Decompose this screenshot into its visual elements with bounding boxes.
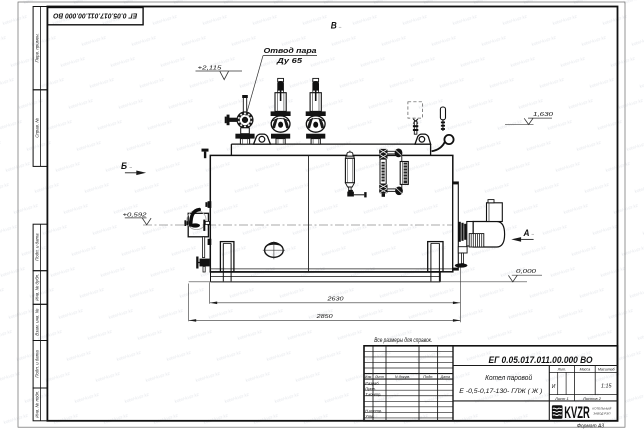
svg-text:И: И xyxy=(552,384,556,390)
svg-text:В: В xyxy=(331,21,337,31)
svg-text:Справ. №: Справ. № xyxy=(35,118,40,138)
svg-text:+0,592: +0,592 xyxy=(123,212,148,218)
svg-text:Масштаб: Масштаб xyxy=(598,368,616,372)
svg-text:А: А xyxy=(523,228,530,238)
svg-text:Взам. инв. №: Взам. инв. № xyxy=(35,308,40,335)
svg-text:Подп.: Подп. xyxy=(423,375,433,379)
svg-text:КОТЕЛЬНЫЙ: КОТЕЛЬНЫЙ xyxy=(592,407,612,411)
svg-text:Разраб.: Разраб. xyxy=(365,380,379,385)
svg-text:Масса: Масса xyxy=(580,368,591,372)
svg-text:Отвод пара: Отвод пара xyxy=(264,46,317,55)
svg-text:2630: 2630 xyxy=(326,296,344,302)
svg-text:Т.контр.: Т.контр. xyxy=(365,391,381,396)
svg-text:ЗАВОД РЭП: ЗАВОД РЭП xyxy=(593,411,611,415)
svg-text:Б: Б xyxy=(121,161,128,171)
svg-text:1,630: 1,630 xyxy=(533,112,554,118)
svg-text:Изм.: Изм. xyxy=(365,375,372,379)
svg-text:+2,115: +2,115 xyxy=(198,65,223,71)
svg-text:ЕГ 0.05.017.011.00.000 ВО: ЕГ 0.05.017.011.00.000 ВО xyxy=(489,354,594,365)
svg-text:Лит.: Лит. xyxy=(557,368,566,372)
svg-text:1:15: 1:15 xyxy=(601,384,612,390)
svg-text:ЕГ 0.05.017.011.00.000 ВО: ЕГ 0.05.017.011.00.000 ВО xyxy=(53,12,137,21)
svg-text:Дата: Дата xyxy=(440,375,450,379)
svg-text:Лист 1: Лист 1 xyxy=(554,396,569,401)
svg-text:Пров.: Пров. xyxy=(365,386,376,391)
svg-text:Н.контр.: Н.контр. xyxy=(365,408,382,413)
svg-text:Перв. примен.: Перв. примен. xyxy=(35,33,40,62)
svg-text:Листов 2: Листов 2 xyxy=(582,396,602,401)
svg-text:Инв. № подл.: Инв. № подл. xyxy=(35,390,40,417)
svg-text:Все размеры для справок.: Все размеры для справок. xyxy=(374,338,432,344)
svg-text:N докум.: N докум. xyxy=(395,375,410,379)
svg-text:Инв. № дубл.: Инв. № дубл. xyxy=(35,274,40,301)
svg-text:Утв.: Утв. xyxy=(365,414,374,419)
svg-text:Формат А3: Формат А3 xyxy=(577,423,605,429)
svg-text:Е -0,5-0,17-130- ГЛЖ ( Ж ): Е -0,5-0,17-130- ГЛЖ ( Ж ) xyxy=(459,388,542,395)
svg-text:KVZR: KVZR xyxy=(564,404,590,422)
svg-text:Лист: Лист xyxy=(374,375,384,379)
svg-text:Подп. и дата: Подп. и дата xyxy=(35,233,40,261)
svg-text:2850: 2850 xyxy=(315,314,333,320)
svg-text:Ду 65: Ду 65 xyxy=(276,56,304,65)
svg-text:0,000: 0,000 xyxy=(516,269,537,275)
svg-text:Подп. и дата: Подп. и дата xyxy=(35,350,40,378)
svg-text:Котел паровой: Котел паровой xyxy=(485,374,532,382)
